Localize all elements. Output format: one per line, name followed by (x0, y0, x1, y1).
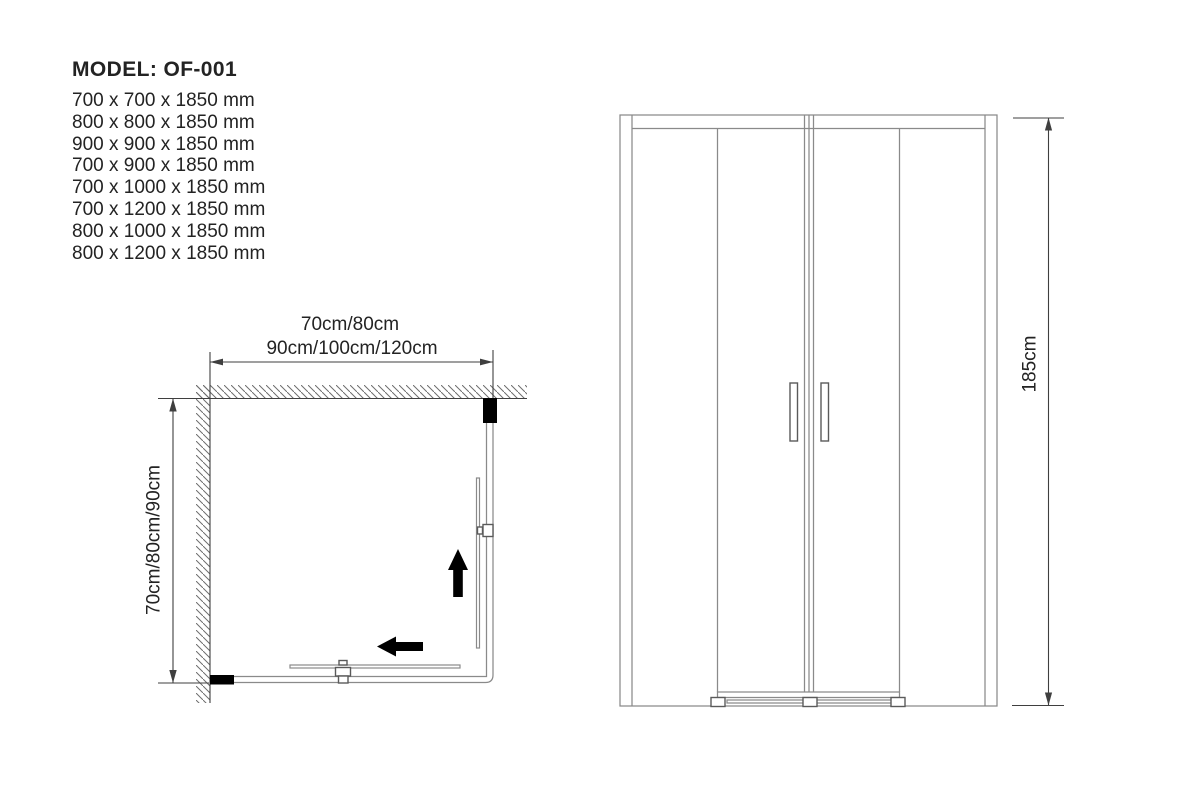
arrowhead-left-icon (210, 359, 223, 366)
roller-foot-right (891, 698, 905, 707)
technical-drawing-page: { "title": "MODEL: OF-001", "sizes": [ "… (0, 0, 1200, 800)
size-item: 900 x 900 x 1850 mm (72, 134, 265, 156)
top-wall-hatch (196, 385, 527, 399)
front-height-label: 185cm (1020, 335, 1041, 392)
size-item: 700 x 1000 x 1850 mm (72, 177, 265, 199)
size-item: 700 x 900 x 1850 mm (72, 155, 265, 177)
plan-width-label-line2: 90cm/100cm/120cm (266, 338, 437, 359)
wall-profile-top (483, 398, 497, 423)
size-item: 800 x 1000 x 1850 mm (72, 221, 265, 243)
arrowhead-up-icon (169, 399, 176, 412)
front-view-diagram: 185cm (615, 105, 1080, 717)
slide-direction-left-arrow-icon (377, 637, 423, 657)
slide-direction-up-arrow-icon (448, 549, 468, 597)
front-height-dimension: 185cm (1012, 118, 1064, 706)
center-mullion (805, 115, 814, 692)
roller-foot-left (711, 698, 725, 707)
roller-foot-center (803, 698, 817, 707)
left-wall-hatch (196, 385, 210, 703)
size-item: 700 x 700 x 1850 mm (72, 90, 265, 112)
size-list: 700 x 700 x 1850 mm 800 x 800 x 1850 mm … (72, 90, 265, 264)
left-door-handle (790, 383, 798, 441)
plan-view-diagram: 70cm/80cm 90cm/100cm/120cm 70cm/80cm/90c… (140, 300, 560, 730)
size-item: 800 x 1200 x 1850 mm (72, 243, 265, 265)
right-door-handle (821, 383, 829, 441)
track-inner-line (234, 423, 487, 677)
wall-profile-left (210, 675, 234, 685)
panel-knob-horizontal (336, 661, 351, 684)
arrowhead-down-icon (1045, 693, 1052, 706)
model-title: MODEL: OF-001 (72, 58, 265, 82)
sliding-panel-horizontal (290, 665, 460, 668)
arrowhead-down-icon (169, 670, 176, 683)
arrowhead-right-icon (480, 359, 493, 366)
bottom-rail (718, 692, 900, 698)
arrowhead-up-icon (1045, 118, 1052, 131)
size-item: 800 x 800 x 1850 mm (72, 112, 265, 134)
title-block: MODEL: OF-001 700 x 700 x 1850 mm 800 x … (72, 58, 265, 264)
track-outer-line (234, 423, 493, 683)
plan-depth-label: 70cm/80cm/90cm (144, 465, 165, 615)
sliding-panel-vertical (477, 478, 480, 648)
size-item: 700 x 1200 x 1850 mm (72, 199, 265, 221)
plan-width-label-line1: 70cm/80cm (301, 314, 399, 335)
